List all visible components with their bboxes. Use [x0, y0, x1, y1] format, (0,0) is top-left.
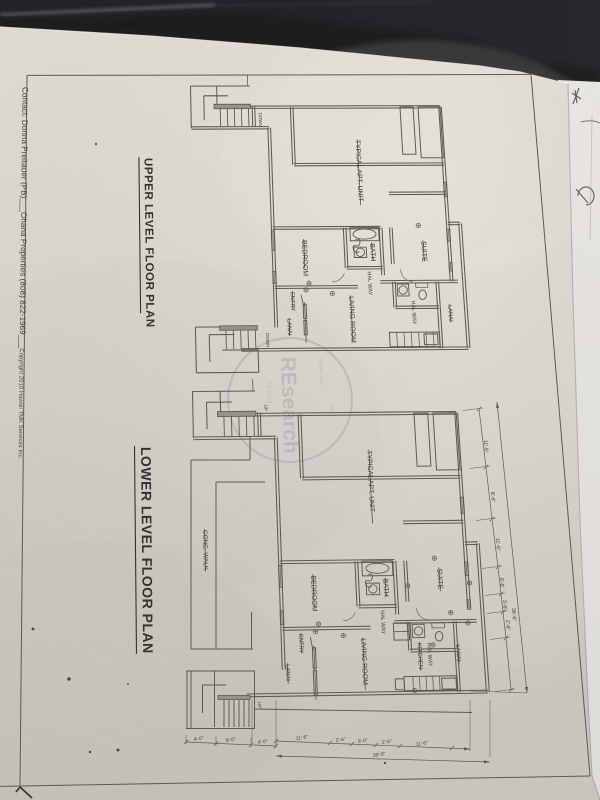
- svg-text:UP: UP: [263, 405, 268, 411]
- svg-text:11'-6": 11'-6": [482, 440, 489, 453]
- svg-text:ENTRY: ENTRY: [297, 634, 304, 654]
- svg-text:UP: UP: [257, 702, 262, 708]
- svg-text:11'-6": 11'-6": [494, 538, 501, 551]
- svg-text:DOWN: DOWN: [258, 112, 263, 126]
- svg-text:36'-6": 36'-6": [510, 608, 517, 622]
- svg-text:LANAI: LANAI: [285, 319, 292, 336]
- svg-text:№ 2013: № 2013: [265, 382, 273, 404]
- svg-text:LANAI: LANAI: [454, 644, 461, 661]
- svg-text:ENTRY: ENTRY: [289, 292, 296, 312]
- svg-text:HAL WAY: HAL WAY: [366, 271, 373, 296]
- svg-text:REsearch: REsearch: [276, 356, 302, 454]
- svg-text:3'-6": 3'-6": [501, 600, 508, 611]
- svg-text:.com: .com: [328, 402, 334, 413]
- svg-text:LOWER LEVEL FLOOR PLAN: LOWER LEVEL FLOOR PLAN: [138, 447, 156, 654]
- svg-text:Hawaii TMK: Hawaii TMK: [317, 359, 324, 387]
- svg-text:UPPER LEVEL FLOOR PLAN: UPPER LEVEL FLOOR PLAN: [142, 158, 156, 328]
- svg-text:LANAI: LANAI: [284, 664, 291, 681]
- svg-text:2'-6": 2'-6": [504, 620, 511, 631]
- svg-text:HAL WAY: HAL WAY: [379, 610, 386, 635]
- svg-text:8'-6": 8'-6": [498, 578, 505, 589]
- svg-text:8'-6": 8'-6": [489, 492, 496, 503]
- svg-text:DOWN: DOWN: [265, 333, 270, 347]
